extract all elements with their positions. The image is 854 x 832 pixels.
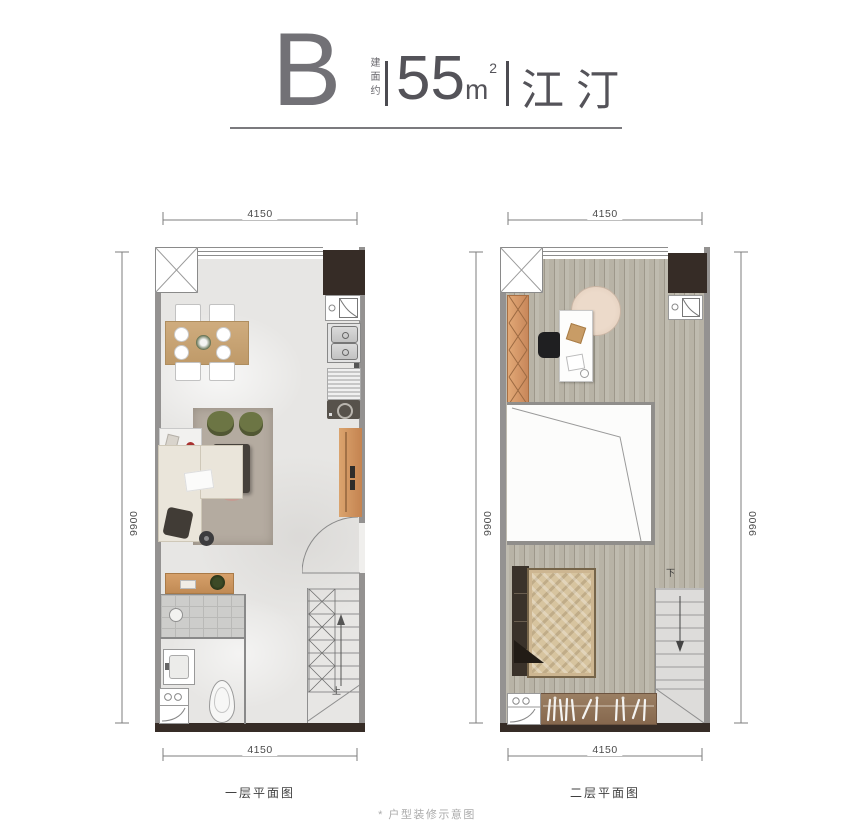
bed bbox=[512, 566, 592, 676]
kitchen-sink-icon bbox=[327, 323, 361, 363]
dim-bottom-second-label: 4150 bbox=[587, 744, 622, 756]
first-floor-plan: 上 bbox=[155, 247, 365, 732]
sink-basin-top bbox=[331, 326, 358, 343]
headboard-shelf bbox=[514, 593, 527, 594]
plate-icon bbox=[216, 327, 231, 342]
dining-chair bbox=[209, 362, 235, 381]
area-prefix-label: 建面约 bbox=[366, 57, 381, 107]
wardrobe-tall bbox=[507, 295, 529, 407]
stair-direction-down: 下 bbox=[666, 569, 675, 578]
drain-icon bbox=[342, 349, 349, 356]
dim-top-first-label: 4150 bbox=[242, 208, 277, 220]
wall-right bbox=[704, 247, 710, 723]
stove-icon bbox=[327, 400, 360, 419]
dim-top-second: 4150 bbox=[500, 203, 710, 225]
drain-icon bbox=[342, 332, 349, 339]
wall-bottom-dark bbox=[155, 723, 365, 732]
toilet-bowl bbox=[214, 687, 230, 713]
stair-direction-up: 上 bbox=[332, 687, 341, 696]
dining-chair bbox=[175, 362, 201, 381]
area-exponent: 2 bbox=[489, 60, 497, 76]
wall-left bbox=[500, 247, 506, 723]
dim-bottom-first-label: 4150 bbox=[242, 744, 277, 756]
wood-cabinet bbox=[339, 428, 362, 517]
floorplan-sheet: { "header": { "unit_letter": "B", "area_… bbox=[0, 0, 854, 832]
pouf-icon bbox=[239, 412, 263, 436]
pouf-icon bbox=[207, 411, 234, 436]
plant-icon bbox=[210, 575, 225, 590]
area-value: 55 bbox=[396, 44, 465, 113]
shaft-box-icon bbox=[155, 247, 198, 293]
footnote: * 户型装修示意图 bbox=[0, 806, 854, 822]
basin-icon bbox=[169, 655, 189, 679]
plate-icon bbox=[174, 327, 189, 342]
laundry-unit bbox=[507, 693, 541, 725]
bathroom-vanity bbox=[163, 649, 195, 685]
desk-item bbox=[566, 323, 586, 344]
sink-basin-bottom bbox=[331, 343, 358, 360]
centerpiece-icon bbox=[196, 335, 211, 350]
void-double-height bbox=[507, 402, 655, 545]
area-unit: m bbox=[465, 74, 488, 105]
interior-wall bbox=[244, 594, 246, 724]
laundry-counter bbox=[159, 688, 189, 706]
sofa-pillow bbox=[184, 469, 214, 492]
stairs-up: 上 bbox=[307, 588, 361, 723]
water-heater-icon bbox=[668, 295, 703, 320]
entry-door-swing-icon bbox=[302, 517, 360, 575]
plate-icon bbox=[174, 345, 189, 360]
faucet-icon bbox=[165, 663, 169, 670]
unit-name: 江汀 bbox=[521, 56, 631, 118]
desk bbox=[559, 310, 593, 382]
shower-head-icon bbox=[169, 608, 183, 622]
area-value-group: 55m2 bbox=[396, 48, 497, 110]
console-item bbox=[180, 580, 196, 589]
second-floor-caption: 二层平面图 bbox=[500, 784, 710, 801]
dark-block-topright bbox=[668, 253, 707, 293]
cabinet-seam bbox=[345, 432, 347, 512]
desk-chair bbox=[538, 332, 560, 358]
interior-wall bbox=[160, 637, 246, 639]
headboard-shelf bbox=[514, 621, 527, 622]
console-table bbox=[165, 573, 234, 594]
cup-icon bbox=[580, 369, 589, 378]
dim-top-first: 4150 bbox=[155, 203, 365, 225]
water-heater-icon bbox=[325, 295, 361, 321]
window-top bbox=[542, 247, 668, 259]
vacuum-dot bbox=[204, 536, 209, 541]
stove-dot bbox=[329, 413, 332, 416]
plate-icon bbox=[216, 345, 231, 360]
cabinet-handle bbox=[350, 480, 355, 490]
stairs-down bbox=[655, 588, 704, 723]
dim-bottom-second: 4150 bbox=[500, 742, 710, 764]
dim-left-second-label: 9900 bbox=[482, 505, 494, 540]
dim-left-first: 9900 bbox=[110, 247, 134, 728]
robot-vacuum-icon bbox=[199, 531, 214, 546]
header-bar-right bbox=[506, 61, 509, 106]
second-floor-plan: 下 bbox=[500, 247, 710, 732]
header-bar-left bbox=[385, 61, 388, 106]
dim-right-second: 9900 bbox=[729, 247, 753, 728]
window-top bbox=[197, 247, 323, 259]
unit-letter: B bbox=[272, 18, 341, 122]
washer-icon bbox=[159, 705, 189, 724]
dim-top-second-label: 4150 bbox=[587, 208, 622, 220]
first-floor-caption: 一层平面图 bbox=[155, 784, 365, 801]
dim-bottom-first: 4150 bbox=[155, 742, 365, 764]
shower-area bbox=[160, 594, 246, 639]
dim-left-first-label: 9900 bbox=[128, 505, 140, 540]
dark-block-topright bbox=[323, 250, 365, 295]
dining-table bbox=[165, 321, 249, 365]
dim-right-second-label: 9900 bbox=[747, 505, 759, 540]
header-divider bbox=[230, 127, 622, 129]
counter-striped bbox=[327, 368, 361, 400]
dim-left-second: 9900 bbox=[464, 247, 488, 728]
wardrobe-clothes bbox=[540, 693, 657, 725]
burner-icon bbox=[337, 403, 353, 419]
cabinet-handle bbox=[350, 466, 355, 478]
shaft-box-icon bbox=[500, 247, 543, 293]
